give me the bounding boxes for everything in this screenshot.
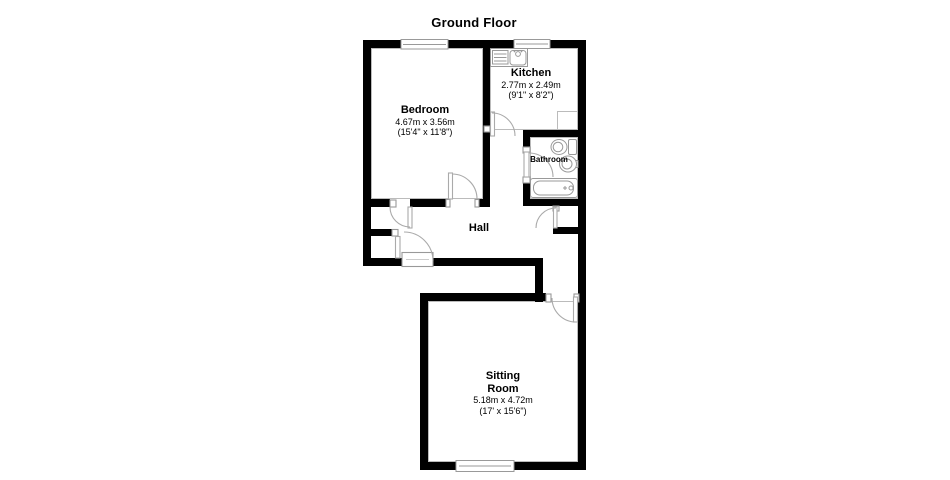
hall-cupboard-door-2 (392, 230, 400, 259)
front-door (402, 232, 433, 267)
wall-kitchen-bathroom (523, 130, 578, 137)
sitting-room-door (546, 294, 579, 322)
kitchen-window (514, 40, 550, 49)
wall-hall-bottom (363, 258, 543, 266)
kitchen-label: Kitchen 2.77m x 2.49m (9'1" x 8'2") (481, 67, 581, 101)
sitting-room-name: Sitting Room (443, 370, 563, 395)
bathroom-fixtures (531, 140, 579, 198)
wall-bedroom-bottom-a (363, 199, 390, 207)
bedroom-window (401, 40, 448, 50)
kitchen-boiler-cupboard (558, 112, 578, 130)
bathroom-name: Bathroom (519, 155, 579, 164)
wall-bedroom-bottom-b (410, 199, 446, 207)
kitchen-fixtures (491, 49, 528, 67)
hall-cupboard-door-1 (390, 200, 412, 228)
airing-cupboard-door (536, 206, 559, 228)
sitting-room-dim-metric: 5.18m x 4.72m (443, 395, 563, 406)
kitchen-dim-metric: 2.77m x 2.49m (481, 80, 581, 91)
bedroom-door (446, 173, 479, 207)
bedroom-dim-metric: 4.67m x 3.56m (365, 117, 485, 128)
wall-bathroom-bottom (523, 199, 578, 206)
kitchen-sink (510, 51, 526, 66)
kitchen-drainer (493, 51, 509, 65)
hall-label: Hall (444, 222, 514, 235)
kitchen-name: Kitchen (481, 67, 581, 80)
bathtub (531, 179, 578, 198)
kitchen-dim-imperial: (9'1" x 8'2") (481, 90, 581, 101)
sitting-room-label: Sitting Room 5.18m x 4.72m (17' x 15'6") (443, 370, 563, 416)
wall-right (578, 40, 586, 470)
sitting-room-window (456, 461, 514, 472)
bathroom-door (523, 147, 553, 183)
wall-bedroom-bottom-c (479, 199, 490, 207)
sitting-room-dim-imperial: (17' x 15'6") (443, 406, 563, 417)
wall-sitting-left (420, 293, 428, 470)
bathroom-label: Bathroom (519, 155, 579, 164)
bedroom-dim-imperial: (15'4" x 11'8") (365, 127, 485, 138)
toilet (551, 140, 577, 155)
page-title: Ground Floor (374, 15, 574, 30)
bedroom-label: Bedroom 4.67m x 3.56m (15'4" x 11'8") (365, 104, 485, 138)
wall-top (363, 40, 586, 48)
wall-sitting-top (420, 293, 546, 301)
floorplan-page: Ground Floor Bedroom 4.67m x 3.56m (15'4… (0, 0, 950, 480)
bedroom-name: Bedroom (365, 104, 485, 117)
hall-name: Hall (444, 222, 514, 235)
